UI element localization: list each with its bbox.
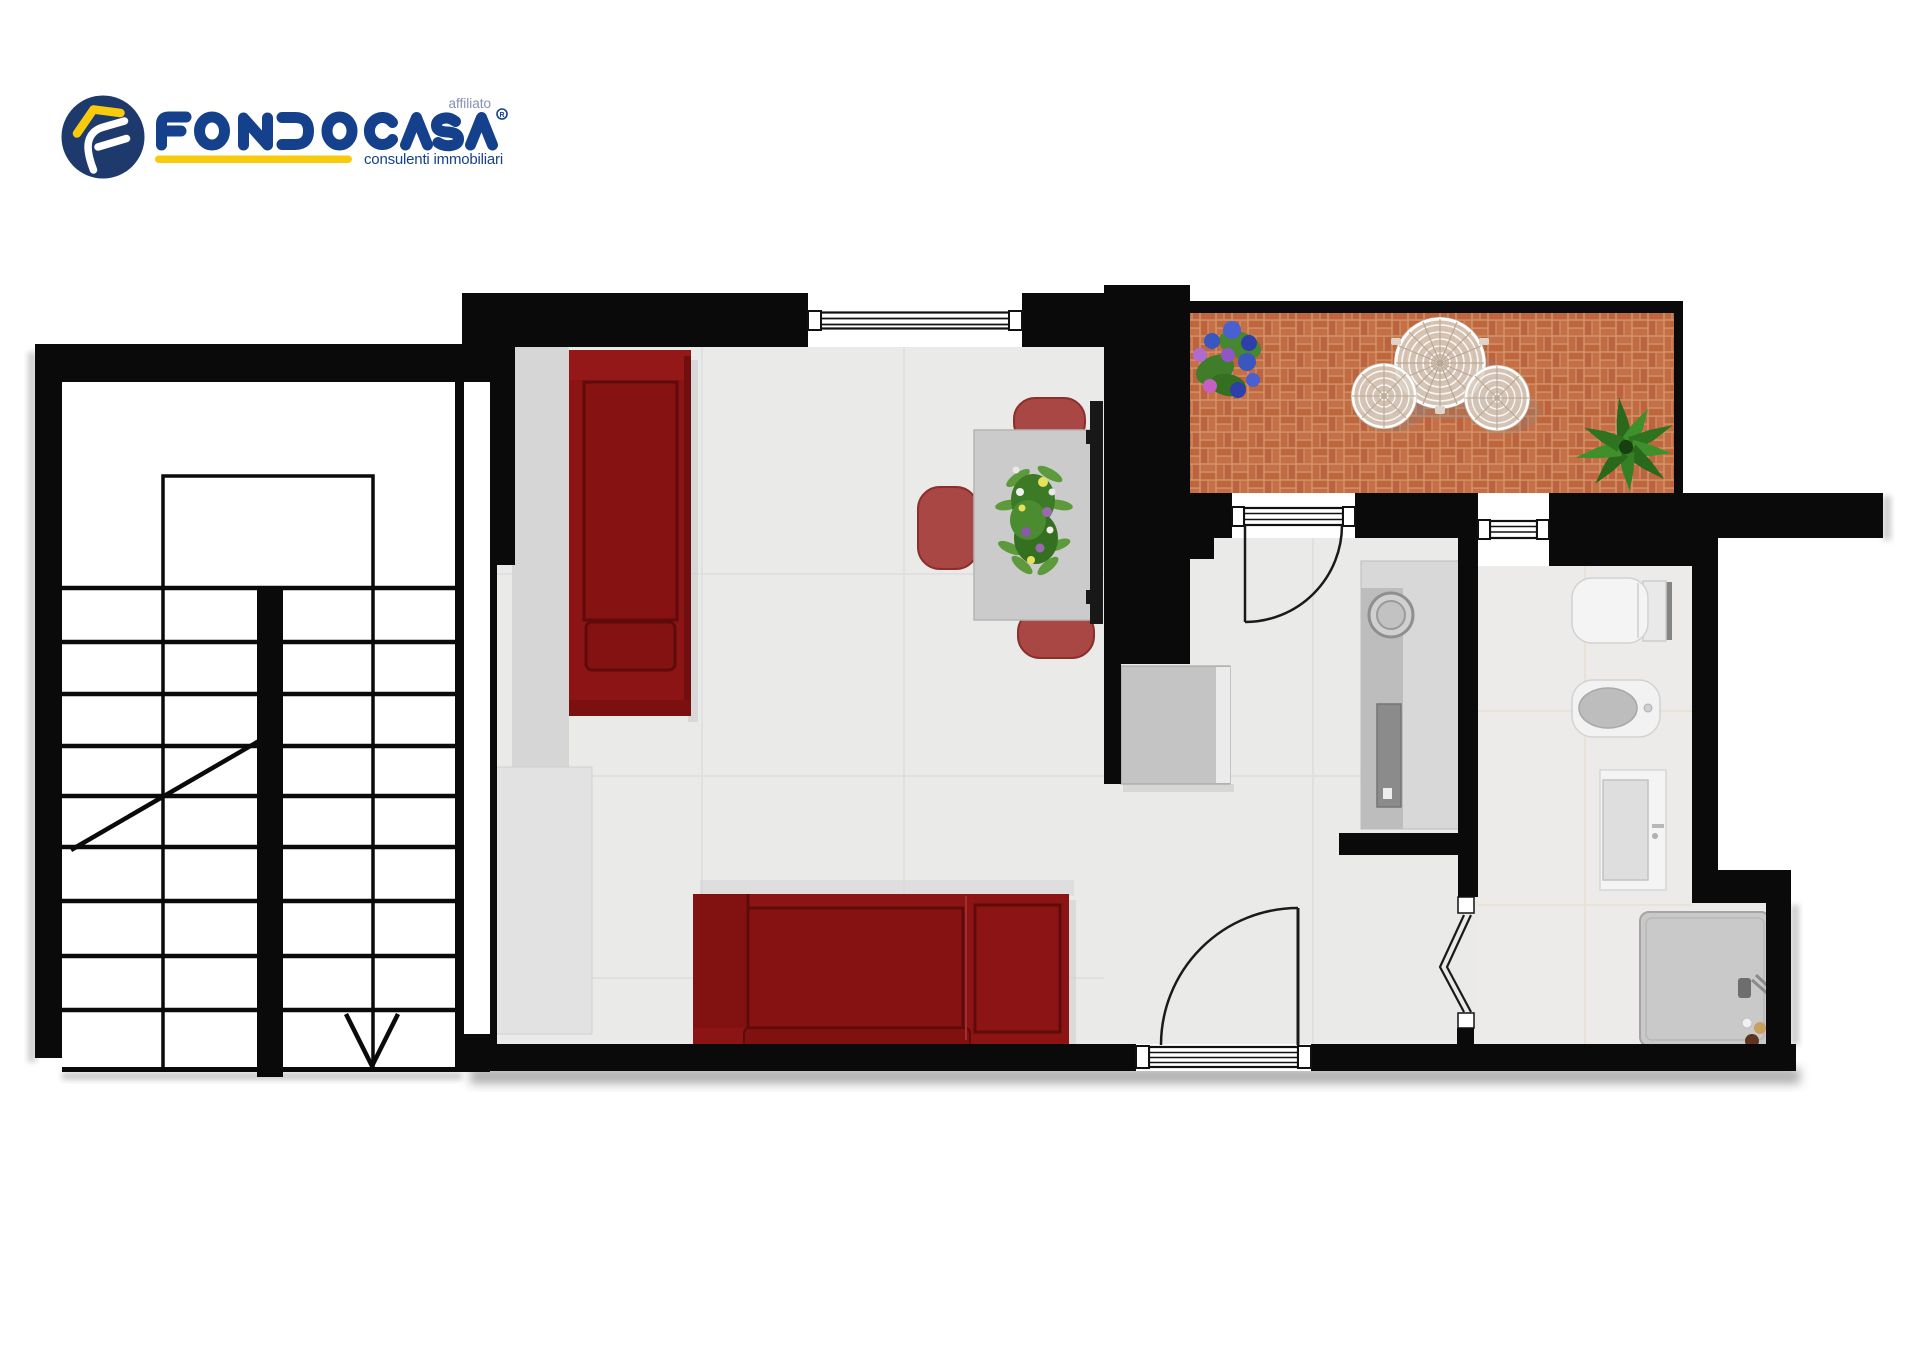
svg-text:consulenti immobiliari: consulenti immobiliari	[364, 151, 503, 168]
svg-text:R: R	[499, 112, 504, 119]
svg-text:affiliato: affiliato	[448, 96, 491, 111]
